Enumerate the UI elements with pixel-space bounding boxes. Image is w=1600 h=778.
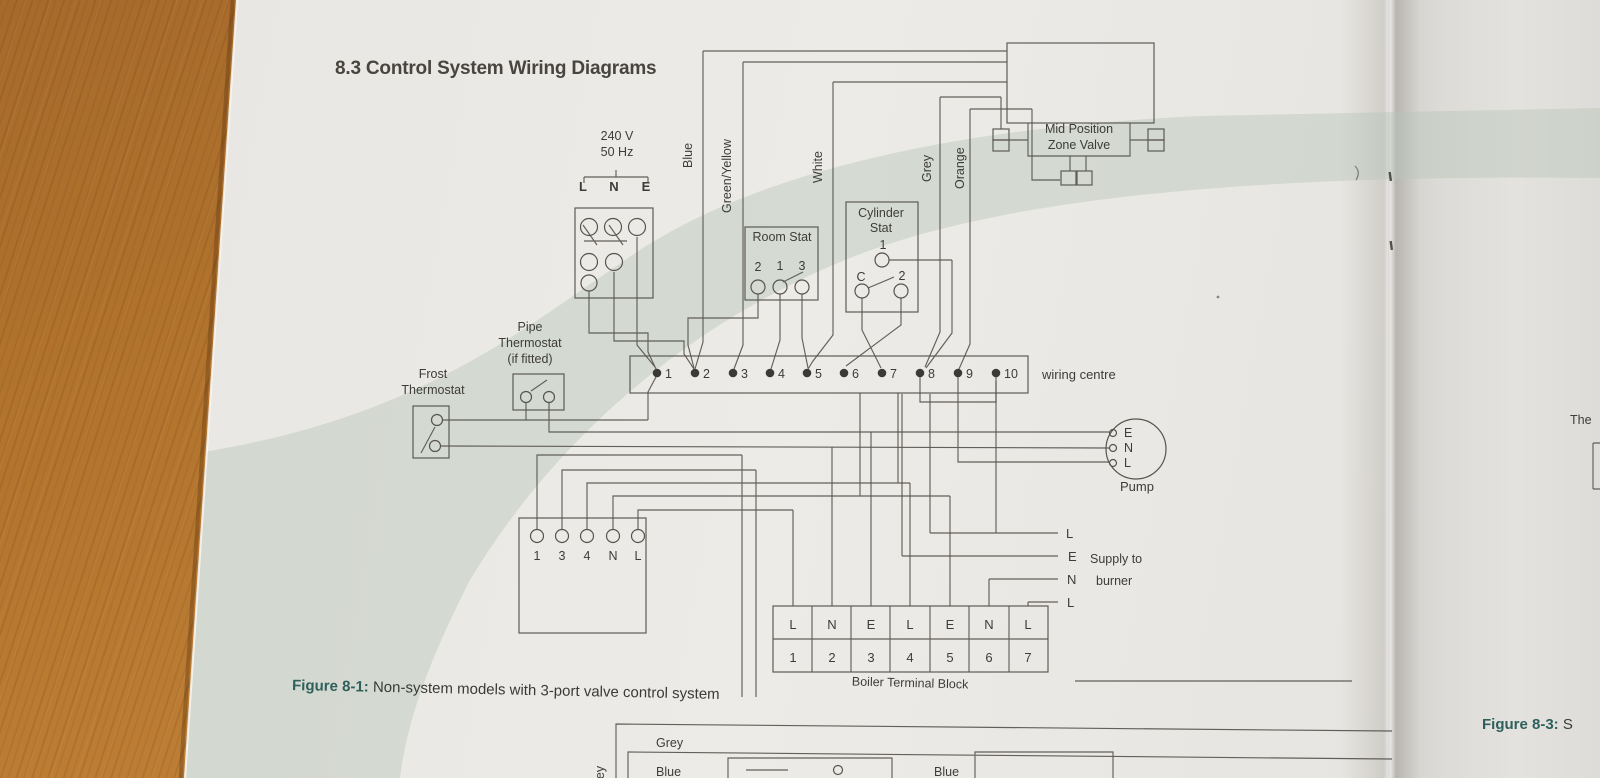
boiler-cell-e2: E (946, 617, 955, 632)
blue-wire-label: Blue (681, 143, 695, 168)
boiler-cell-n1: N (827, 617, 836, 632)
cylinder-stat-terminal-2: 2 (899, 269, 906, 283)
burner-l1-label: L (1066, 526, 1073, 541)
room-stat-terminal-1: 1 (777, 259, 784, 273)
orange-wire-label: Orange (953, 147, 967, 189)
programmer: 1 3 4 N L (519, 518, 646, 633)
pump-l-label: L (1124, 456, 1131, 470)
photo-of-manual-page: 8.3 Control System Wiring Diagrams 240 V… (0, 0, 1600, 778)
wc-terminal-1: 1 (665, 367, 672, 381)
boiler-cell-3: 3 (867, 650, 874, 665)
wc-terminal-3: 3 (741, 367, 748, 381)
zone-valve-label-line2: Zone Valve (1048, 138, 1110, 152)
wc-terminal-7: 7 (890, 367, 897, 381)
white-wire-label: White (811, 151, 825, 183)
burner-e-label: E (1068, 549, 1077, 564)
pump: E N L Pump (1106, 419, 1166, 494)
frost-thermostat-label-line1: Frost (419, 367, 448, 381)
supply-e-label: E (642, 179, 651, 194)
room-stat-terminal-2: 2 (755, 260, 762, 274)
diagram2-grey-vertical-label: Grey (593, 765, 607, 778)
figure-caption-prefix: Figure 8-1: (292, 677, 369, 696)
wc-terminal-8: 8 (928, 367, 935, 381)
boiler-cell-6: 6 (985, 650, 992, 665)
programmer-terminal-1: 1 (534, 549, 541, 563)
figure-8-3-caption-text: S (1559, 716, 1573, 733)
wc-terminal-2: 2 (703, 367, 710, 381)
burner-l2-label: L (1067, 595, 1074, 610)
programmer-terminal-3: 3 (559, 549, 566, 563)
figure-8-3-caption-prefix: Figure 8-3: (1482, 716, 1559, 733)
boiler-cell-5: 5 (946, 650, 953, 665)
section-title: 8.3 Control System Wiring Diagrams (335, 58, 656, 79)
pump-n-label: N (1124, 441, 1133, 455)
boiler-cell-4: 4 (906, 650, 913, 665)
cylinder-stat-title-line2: Stat (870, 221, 893, 235)
diagram2-grey-label: Grey (656, 736, 684, 750)
boiler-cell-1: 1 (789, 650, 796, 665)
boiler-cell-n2: N (984, 617, 993, 632)
cylinder-stat-terminal-1: 1 (880, 238, 887, 252)
wc-terminal-5: 5 (815, 367, 822, 381)
burner-caption-line1: Supply to (1090, 552, 1142, 566)
programmer-box (519, 518, 646, 633)
supply-l-label: L (579, 179, 587, 194)
boiler-cell-2: 2 (828, 650, 835, 665)
programmer-terminal-n: N (608, 549, 617, 563)
figure-8-3-caption: Figure 8-3: S (1482, 716, 1573, 733)
supply-n-label: N (609, 179, 618, 194)
burner-supply: L E N L Supply to burner (1066, 526, 1142, 610)
green-yellow-wire-label: Green/Yellow (720, 138, 734, 213)
pipe-thermostat-label-line2: Thermostat (498, 336, 562, 350)
room-stat-terminal-3: 3 (799, 259, 806, 273)
wc-terminal-9: 9 (966, 367, 973, 381)
boiler-cell-e1: E (867, 617, 876, 632)
wc-terminal-4: 4 (778, 367, 785, 381)
wc-terminal-10: 10 (1004, 367, 1018, 381)
wc-terminal-6: 6 (852, 367, 859, 381)
cylinder-stat-title-line1: Cylinder (858, 206, 904, 220)
pipe-thermostat-label-line3: (if fitted) (507, 352, 552, 366)
zone-valve-box (1007, 43, 1154, 123)
right-page-partial-text: The (1570, 413, 1592, 427)
frost-thermostat-label-line2: Thermostat (401, 383, 465, 397)
programmer-terminal-l: L (635, 549, 642, 563)
cylinder-stat-terminal-c: C (856, 270, 865, 284)
wiring-centre-label: wiring centre (1041, 367, 1116, 382)
boiler-cell-l2: L (906, 617, 913, 632)
wiring-diagram-svg: 8.3 Control System Wiring Diagrams 240 V… (0, 0, 1600, 778)
boiler-terminal-block: L N E L E N L 1 2 3 4 5 6 7 Boiler Termi… (773, 606, 1048, 692)
pump-e-label: E (1124, 426, 1132, 440)
boiler-cell-l1: L (789, 617, 796, 632)
room-stat-title: Room Stat (752, 230, 812, 244)
supply-voltage-label: 240 V (601, 129, 634, 143)
programmer-terminal-4: 4 (584, 549, 591, 563)
burner-n-label: N (1067, 572, 1076, 587)
pipe-thermostat-label-line1: Pipe (517, 320, 542, 334)
grey-wire-label: Grey (920, 154, 934, 182)
boiler-cell-l3: L (1024, 617, 1031, 632)
boiler-terminal-block-label: Boiler Terminal Block (852, 674, 970, 691)
pump-label: Pump (1120, 479, 1154, 494)
diagram2-blue-label: Blue (656, 765, 681, 778)
right-page-content: The Figure 8-3: S (1482, 413, 1600, 733)
boiler-cell-7: 7 (1024, 650, 1031, 665)
diagram2-blue-right-label: Blue (934, 765, 959, 778)
supply-frequency-label: 50 Hz (601, 145, 634, 159)
zone-valve-label-line1: Mid Position (1045, 122, 1113, 136)
figure-caption-text: Non-system models with 3-port valve cont… (369, 679, 720, 703)
pump-circle (1106, 419, 1166, 479)
wiring-centre: 1 2 3 4 5 6 7 8 9 10 wiring centre (630, 356, 1116, 402)
burner-caption-line2: burner (1096, 574, 1132, 588)
